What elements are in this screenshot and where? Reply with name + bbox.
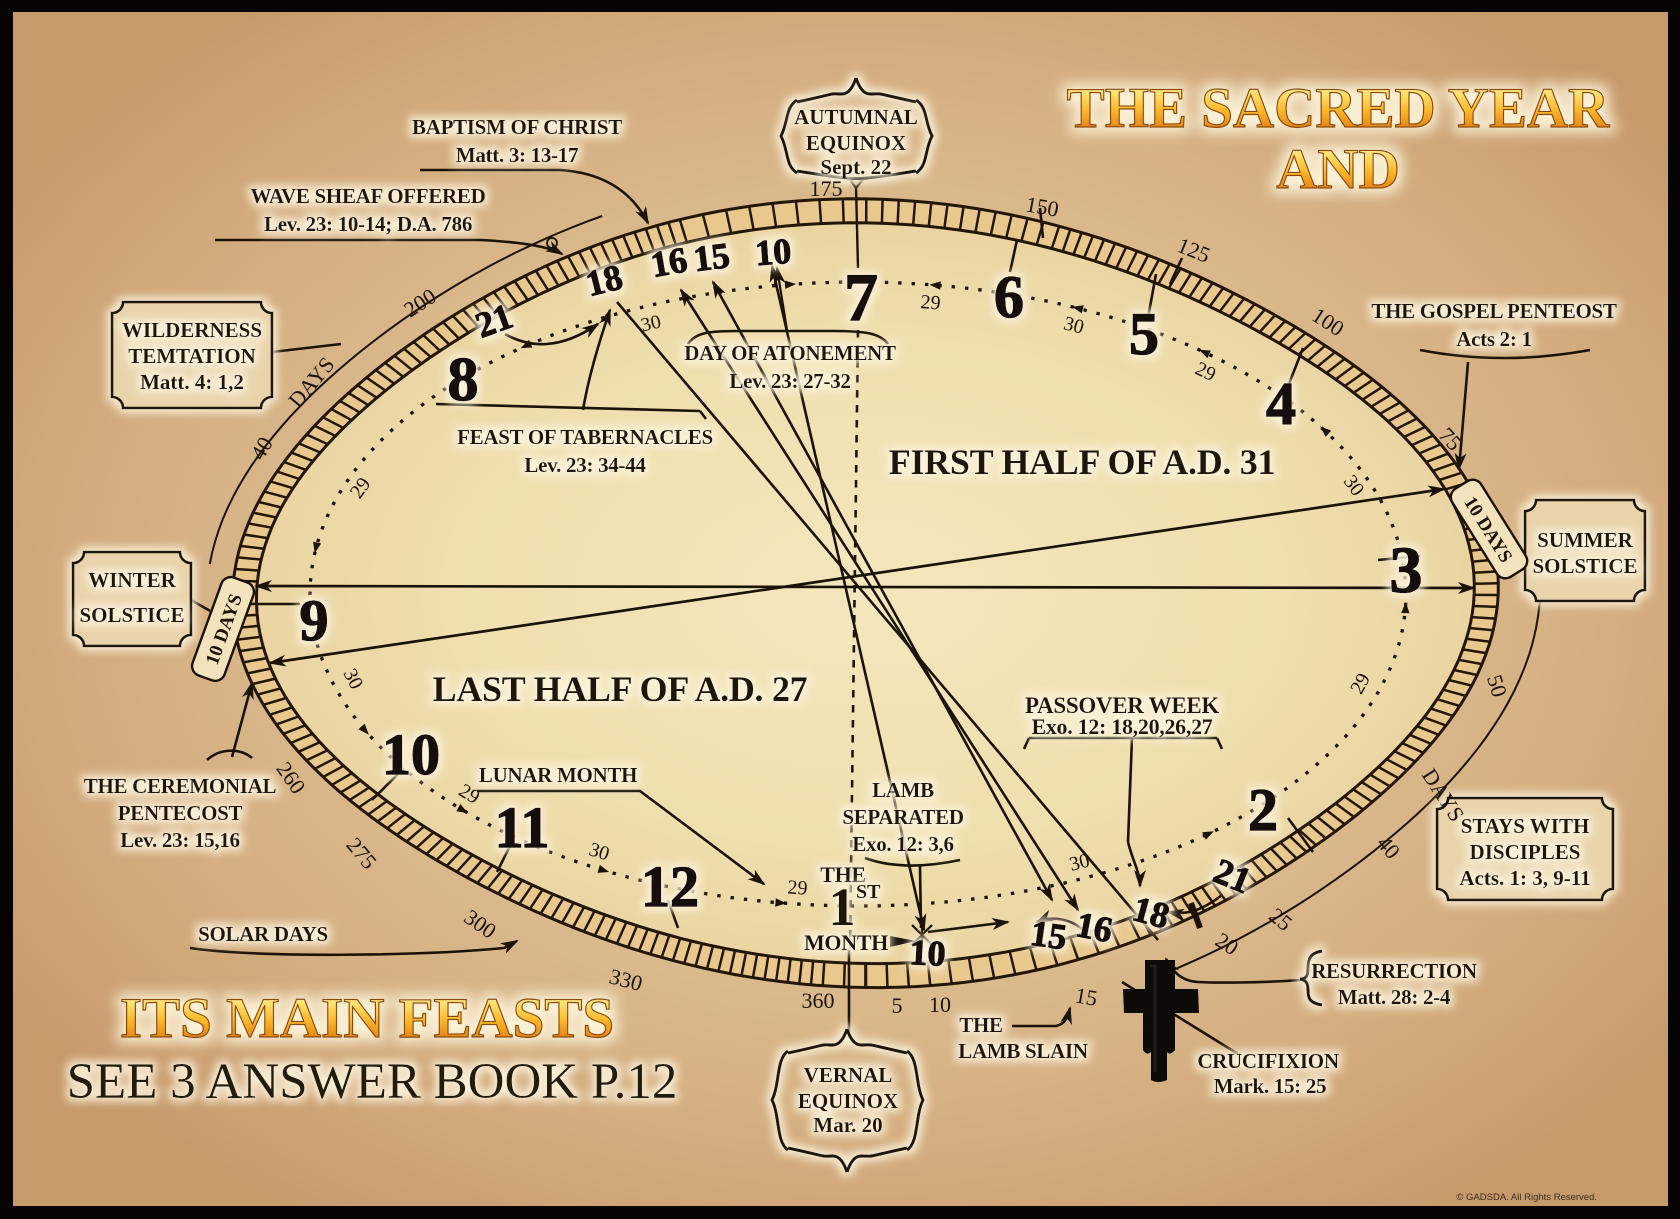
svg-text:LAMB SLAIN: LAMB SLAIN	[958, 1039, 1088, 1063]
svg-text:12: 12	[641, 854, 699, 919]
svg-text:FEAST OF TABERNACLES: FEAST OF TABERNACLES	[457, 425, 713, 449]
svg-text:LUNAR MONTH: LUNAR MONTH	[479, 763, 637, 787]
svg-text:7: 7	[844, 259, 878, 335]
svg-text:8: 8	[448, 346, 479, 414]
svg-text:WINTER: WINTER	[88, 568, 176, 592]
svg-text:2: 2	[1248, 777, 1278, 843]
svg-text:Matt. 4: 1,2: Matt. 4: 1,2	[140, 370, 244, 394]
svg-text:29: 29	[787, 876, 808, 899]
svg-text:ITS MAIN FEASTS: ITS MAIN FEASTS	[120, 987, 614, 1050]
svg-text:SEE 3 ANSWER BOOK P.12: SEE 3 ANSWER BOOK P.12	[67, 1054, 678, 1110]
svg-text:15: 15	[1073, 982, 1099, 1010]
svg-text:360: 360	[802, 988, 835, 1013]
svg-text:10: 10	[929, 992, 951, 1017]
svg-text:5: 5	[892, 993, 903, 1018]
svg-text:6: 6	[994, 264, 1024, 330]
svg-text:THE CEREMONIAL: THE CEREMONIAL	[84, 774, 277, 798]
svg-text:WAVE SHEAF OFFERED: WAVE SHEAF OFFERED	[251, 184, 486, 208]
svg-text:© GADSDA. All Rights Reserved.: © GADSDA. All Rights Reserved.	[1456, 1192, 1597, 1203]
svg-text:CRUCIFIXION: CRUCIFIXION	[1197, 1049, 1339, 1073]
svg-text:WILDERNESS: WILDERNESS	[122, 318, 262, 342]
svg-text:SEPARATED: SEPARATED	[842, 805, 964, 829]
svg-text:SOLAR DAYS: SOLAR DAYS	[198, 922, 328, 946]
svg-text:FIRST HALF OF A.D. 31: FIRST HALF OF A.D. 31	[889, 442, 1275, 482]
svg-text:AND: AND	[1276, 138, 1400, 201]
svg-text:10: 10	[382, 722, 440, 787]
svg-text:1: 1	[829, 877, 856, 937]
svg-text:THE: THE	[959, 1013, 1002, 1037]
svg-text:EQUINOX: EQUINOX	[798, 1089, 898, 1113]
svg-text:10: 10	[754, 231, 793, 273]
svg-text:DISCIPLES: DISCIPLES	[1470, 840, 1581, 864]
svg-text:Lev. 23: 10-14; D.A. 786: Lev. 23: 10-14; D.A. 786	[264, 212, 472, 236]
svg-text:9: 9	[300, 588, 329, 653]
svg-text:VERNAL: VERNAL	[804, 1063, 893, 1087]
svg-text:Lev. 23: 27-32: Lev. 23: 27-32	[729, 369, 850, 393]
svg-text:AUTUMNAL: AUTUMNAL	[794, 105, 918, 129]
svg-text:15: 15	[691, 235, 732, 279]
svg-text:Lev. 23: 15,16: Lev. 23: 15,16	[120, 828, 239, 852]
svg-text:PENTECOST: PENTECOST	[118, 801, 243, 825]
svg-text:3: 3	[1390, 534, 1423, 607]
svg-text:LAMB: LAMB	[872, 778, 934, 802]
svg-text:BAPTISM OF CHRIST: BAPTISM OF CHRIST	[412, 115, 622, 139]
svg-text:Mark. 15: 25: Mark. 15: 25	[1214, 1074, 1326, 1098]
svg-text:Acts 2: 1: Acts 2: 1	[1456, 327, 1531, 351]
svg-text:Matt. 3: 13-17: Matt. 3: 13-17	[456, 143, 578, 167]
svg-text:Acts. 1: 3, 9-11: Acts. 1: 3, 9-11	[1459, 866, 1590, 890]
svg-text:16: 16	[1073, 904, 1116, 950]
svg-text:STAYS WITH: STAYS WITH	[1461, 814, 1590, 838]
svg-text:11: 11	[495, 795, 550, 860]
svg-text:15: 15	[1028, 913, 1069, 958]
svg-text:DAY OF ATONEMENT: DAY OF ATONEMENT	[684, 341, 896, 365]
svg-text:10: 10	[909, 932, 947, 974]
svg-text:SUMMER: SUMMER	[1537, 528, 1633, 552]
svg-text:29: 29	[920, 291, 942, 314]
svg-text:175: 175	[810, 176, 843, 201]
svg-text:4: 4	[1266, 371, 1296, 437]
svg-text:RESURRECTION: RESURRECTION	[1311, 959, 1477, 983]
svg-text:Mar. 20: Mar. 20	[813, 1113, 882, 1137]
svg-text:THE GOSPEL PENTEOST: THE GOSPEL PENTEOST	[1371, 299, 1617, 323]
svg-text:ST: ST	[856, 881, 881, 903]
svg-text:5: 5	[1129, 301, 1159, 367]
svg-text:16: 16	[648, 239, 690, 285]
svg-text:Exo. 12: 3,6: Exo. 12: 3,6	[852, 832, 953, 856]
svg-text:Lev. 23: 34-44: Lev. 23: 34-44	[524, 453, 646, 477]
svg-text:Exo. 12: 18,20,26,27: Exo. 12: 18,20,26,27	[1031, 714, 1212, 739]
svg-text:TEMTATION: TEMTATION	[128, 344, 256, 368]
svg-text:EQUINOX: EQUINOX	[806, 131, 906, 155]
svg-text:THE SACRED YEAR: THE SACRED YEAR	[1067, 77, 1610, 140]
svg-text:Matt. 28: 2-4: Matt. 28: 2-4	[1338, 985, 1451, 1009]
svg-text:SOLSTICE: SOLSTICE	[1532, 554, 1637, 578]
svg-text:LAST HALF OF A.D. 27: LAST HALF OF A.D. 27	[433, 669, 808, 709]
svg-text:SOLSTICE: SOLSTICE	[79, 603, 184, 627]
